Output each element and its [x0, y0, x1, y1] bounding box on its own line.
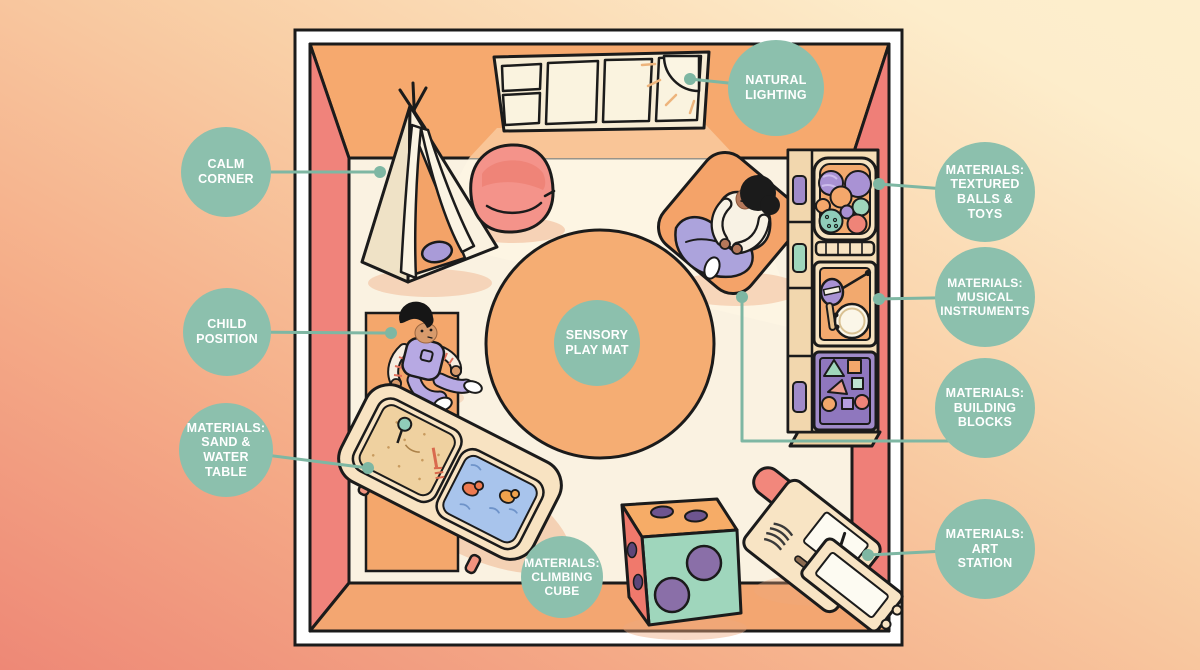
callout-art-station: MATERIALS: ART STATION	[935, 499, 1035, 599]
callout-child-position: CHILD POSITION	[183, 288, 271, 376]
callout-natural-lighting: NATURAL LIGHTING	[728, 40, 824, 136]
callout-building-blocks: MATERIALS: BUILDING BLOCKS	[935, 358, 1035, 458]
window-icon	[494, 52, 709, 131]
callout-musical-instruments: MATERIALS: MUSICAL INSTRUMENTS	[935, 247, 1035, 347]
musical-instruments-crate	[814, 262, 876, 346]
infographic-canvas: NATURAL LIGHTING CALM CORNER CHILD POSIT…	[0, 0, 1200, 670]
textured-balls-basket	[814, 158, 876, 255]
callout-sensory-play-mat: SENSORY PLAY MAT	[554, 300, 640, 386]
shelf-side-cubbies	[788, 150, 812, 432]
bean-bag-icon	[471, 145, 554, 232]
toy-shelf-unit	[788, 150, 880, 446]
building-blocks-crate	[814, 352, 876, 430]
callout-textured-balls-toys: MATERIALS: TEXTURED BALLS & TOYS	[935, 142, 1035, 242]
climbing-cube-icon	[622, 499, 741, 625]
callout-sand-water-table: MATERIALS: SAND & WATER TABLE	[179, 403, 273, 497]
callout-climbing-cube: MATERIALS: CLIMBING CUBE	[521, 536, 603, 618]
callout-calm-corner: CALM CORNER	[181, 127, 271, 217]
